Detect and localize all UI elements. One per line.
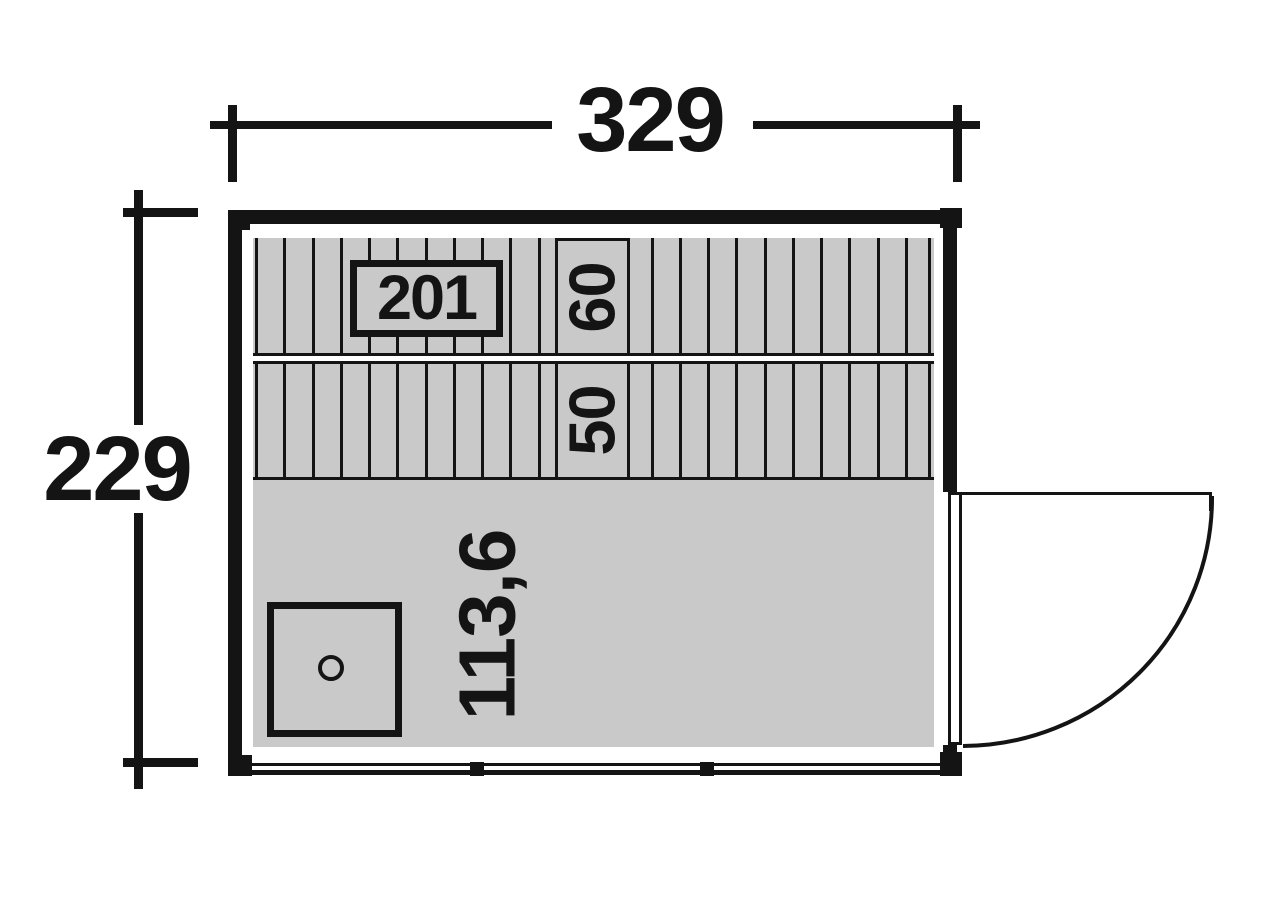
- bench-plank-line: [877, 364, 880, 477]
- bench-plank-line: [679, 364, 682, 477]
- bench-plank-line: [877, 238, 880, 353]
- bench-plank-line: [538, 364, 541, 477]
- bench-plank-line: [792, 238, 795, 353]
- wall-joint-post-left: [470, 762, 484, 776]
- bench-plank-line: [928, 364, 931, 477]
- bench-plank-line: [792, 364, 795, 477]
- bench-lower-depth-box: 50: [555, 361, 630, 480]
- width-dimension-line-right-segment: [753, 121, 980, 129]
- width-dimension-label: 329: [560, 85, 740, 155]
- bench-upper-depth-box: 60: [555, 238, 630, 356]
- bench-upper-depth-label: 60: [560, 262, 625, 332]
- bench-plank-line: [396, 364, 399, 477]
- bench-length-box: 201: [350, 260, 503, 337]
- bench-plank-line: [509, 238, 512, 353]
- depth-dimension-label: 229: [28, 434, 206, 504]
- depth-dimension-tick-bottom: [123, 758, 198, 767]
- outer-wall-left: [228, 210, 242, 776]
- bench-plank-line: [453, 364, 456, 477]
- bench-plank-line: [707, 238, 710, 353]
- corner-post-top-right: [940, 208, 962, 228]
- bench-plank-line: [905, 238, 908, 353]
- bench-plank-line: [425, 364, 428, 477]
- bench-plank-line: [255, 364, 258, 477]
- bench-plank-line: [928, 238, 931, 353]
- bench-plank-line: [312, 364, 315, 477]
- floor-depth-label: 113,6: [453, 525, 523, 726]
- width-dimension-line-left-segment: [210, 121, 552, 129]
- bench-plank-line: [368, 364, 371, 477]
- bench-plank-line: [340, 364, 343, 477]
- bench-plank-line: [848, 364, 851, 477]
- depth-dimension-line-lower-segment: [134, 513, 143, 789]
- bench-plank-line: [283, 364, 286, 477]
- bench-plank-line: [848, 238, 851, 353]
- bench-plank-line: [481, 364, 484, 477]
- corner-post-top-left: [228, 210, 250, 230]
- width-dimension-tick-left: [228, 105, 237, 182]
- bench-plank-line: [679, 238, 682, 353]
- bench-plank-line: [707, 364, 710, 477]
- corner-post-bottom-left: [228, 755, 252, 776]
- bench-plank-line: [764, 238, 767, 353]
- outer-wall-right-upper: [943, 208, 957, 492]
- bench-plank-line: [283, 238, 286, 353]
- bench-plank-line: [509, 364, 512, 477]
- depth-dimension-line-upper-segment: [134, 190, 143, 425]
- outer-wall-bottom-line-lower: [250, 770, 945, 775]
- outer-wall-top: [228, 210, 957, 224]
- bench-plank-line: [820, 238, 823, 353]
- bench-plank-line: [538, 238, 541, 353]
- depth-dimension-tick-top: [123, 208, 198, 217]
- floor-plan-canvas: 329 229 201 60 50 113,6: [0, 0, 1280, 921]
- bench-plank-line: [651, 364, 654, 477]
- bench-plank-line: [735, 364, 738, 477]
- bench-plank-line: [820, 364, 823, 477]
- stove-vent-circle-icon: [318, 655, 344, 681]
- outer-wall-bottom-line-upper: [250, 763, 945, 766]
- bench-plank-line: [312, 238, 315, 353]
- bench-plank-line: [651, 238, 654, 353]
- bench-plank-line: [905, 364, 908, 477]
- wall-joint-post-right: [700, 762, 714, 776]
- bench-length-label: 201: [377, 267, 476, 330]
- width-dimension-tick-right: [953, 105, 962, 182]
- bench-lower-depth-label: 50: [560, 385, 625, 455]
- bench-plank-line: [735, 238, 738, 353]
- bench-plank-line: [764, 364, 767, 477]
- bench-plank-line: [255, 238, 258, 353]
- bench-plank-line: [340, 238, 343, 353]
- door-swing-arc-icon: [958, 494, 1216, 750]
